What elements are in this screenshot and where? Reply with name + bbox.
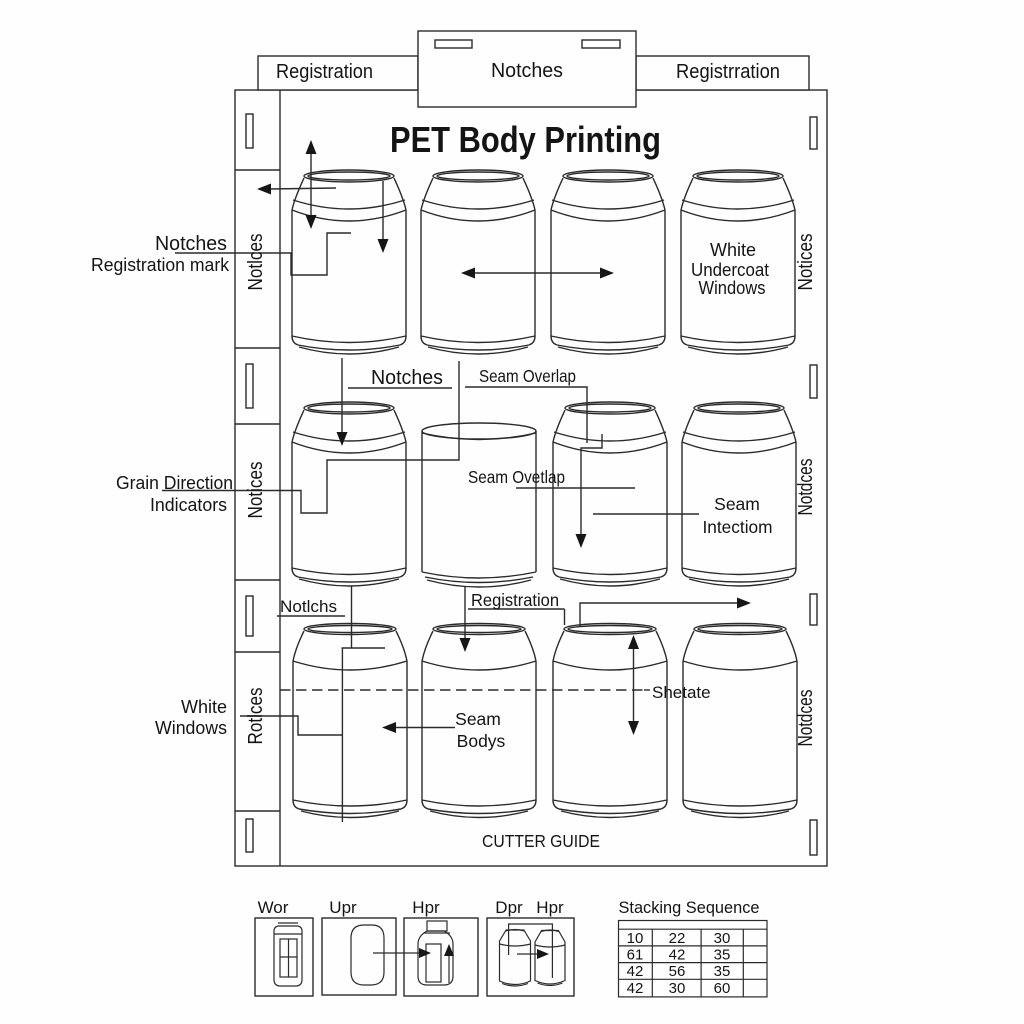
svg-text:56: 56 [669,963,686,980]
svg-text:Registration: Registration [276,61,373,83]
svg-text:Wor: Wor [258,898,289,917]
svg-text:Intectiom: Intectiom [703,517,773,537]
svg-text:Notices: Notices [245,462,267,519]
svg-text:Seam Ovetlap: Seam Ovetlap [468,467,565,487]
svg-text:Stacking Sequence: Stacking Sequence [619,898,760,917]
svg-text:Seam: Seam [455,709,501,729]
svg-text:PET Body Printing: PET Body Printing [390,119,661,160]
svg-text:Registration: Registration [471,590,559,610]
svg-text:30: 30 [714,930,731,947]
svg-text:Notlces: Notlces [245,234,267,291]
svg-text:Hpr: Hpr [412,898,440,917]
svg-text:CUTTER GUIDE: CUTTER GUIDE [482,831,600,851]
svg-text:Indicators: Indicators [150,495,227,515]
svg-text:Notices: Notices [795,234,817,291]
svg-text:Notlchs: Notlchs [280,597,337,616]
svg-text:Notches: Notches [155,233,227,255]
svg-text:60: 60 [714,980,731,997]
svg-text:Upr: Upr [329,898,357,917]
svg-text:Windows: Windows [699,278,766,298]
svg-text:35: 35 [714,947,731,964]
svg-text:61: 61 [627,947,644,964]
svg-text:22: 22 [669,930,686,947]
svg-text:Windows: Windows [155,718,227,738]
svg-text:Seam Overlap: Seam Overlap [479,366,576,386]
svg-text:35: 35 [714,963,731,980]
svg-text:30: 30 [669,980,686,997]
svg-text:Bodys: Bodys [457,731,506,751]
svg-text:Registrration: Registrration [676,61,780,83]
svg-text:Notches: Notches [491,60,563,82]
svg-text:Shetate: Shetate [652,683,711,702]
svg-text:42: 42 [627,980,644,997]
svg-text:Registration mark: Registration mark [91,255,230,275]
svg-text:White: White [710,240,756,260]
svg-text:White: White [181,697,227,717]
svg-text:10: 10 [627,930,644,947]
svg-text:Grain Direction: Grain Direction [116,473,233,493]
svg-text:Dpr: Dpr [495,898,523,917]
svg-text:Notdces: Notdces [795,459,817,516]
svg-text:42: 42 [669,947,686,964]
svg-text:Hpr: Hpr [536,898,564,917]
svg-text:42: 42 [627,963,644,980]
svg-text:Seam: Seam [714,494,760,514]
svg-text:Notdces: Notdces [795,690,817,747]
svg-text:Notches: Notches [371,367,443,389]
svg-text:Undercoat: Undercoat [691,260,769,280]
svg-text:Rotlces: Rotlces [245,688,267,745]
